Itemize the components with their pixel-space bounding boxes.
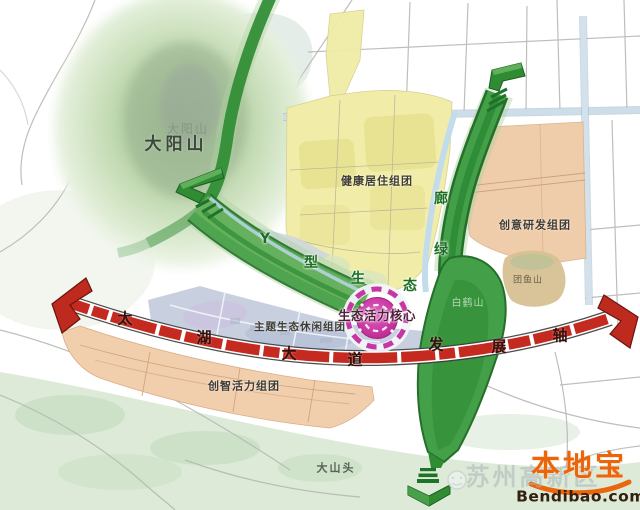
- corridor-char-lv: 绿: [434, 243, 448, 257]
- watermark-mascot-icon: [448, 471, 466, 489]
- region-label-smart-vitality: 创智活力组团: [208, 381, 280, 392]
- region-label-eco-leisure: 主题生态休闲组团: [254, 322, 346, 333]
- region-label-creative-rd: 创意研发组团: [499, 220, 571, 231]
- mountain-label: 大阳山: [145, 137, 208, 154]
- mountain-label-ghost: 大阳山: [167, 123, 209, 135]
- axis-char-zhan: 展: [491, 340, 506, 355]
- axis-char-tai: 太: [117, 312, 132, 327]
- axis-char-da: 大: [281, 347, 296, 362]
- region-label-healthy-living: 健康居住组团: [341, 176, 413, 187]
- corridor-char-y: Y: [260, 232, 270, 246]
- axis-char-zhou: 轴: [552, 329, 567, 344]
- eco-core-label: 生态活力核心: [338, 310, 416, 323]
- hill-label-dashantou: 大山头: [317, 463, 356, 474]
- axis-char-fa: 发: [428, 338, 443, 353]
- axis-char-dao: 道: [347, 353, 362, 368]
- corridor-char-sheng: 生: [351, 272, 365, 286]
- hill-label-tuanyushan: 团鱼山: [513, 277, 543, 286]
- brand-logo: 本地宝: [531, 452, 627, 481]
- corridor-char-lang: 廊: [434, 192, 448, 206]
- planning-map: 大阳山 大阳山 健康居住组团 创意研发组团 创智活力组团 主题生态休闲组团 大山…: [0, 0, 640, 510]
- map-canvas: [0, 0, 640, 510]
- corridor-char-xing: 型: [304, 256, 318, 270]
- hill-label-baiheshan: 白鹤山: [452, 299, 485, 309]
- axis-char-hu: 湖: [196, 331, 211, 346]
- corridor-char-tai: 态: [403, 279, 417, 293]
- brand-site: Bendibao.com: [516, 489, 640, 505]
